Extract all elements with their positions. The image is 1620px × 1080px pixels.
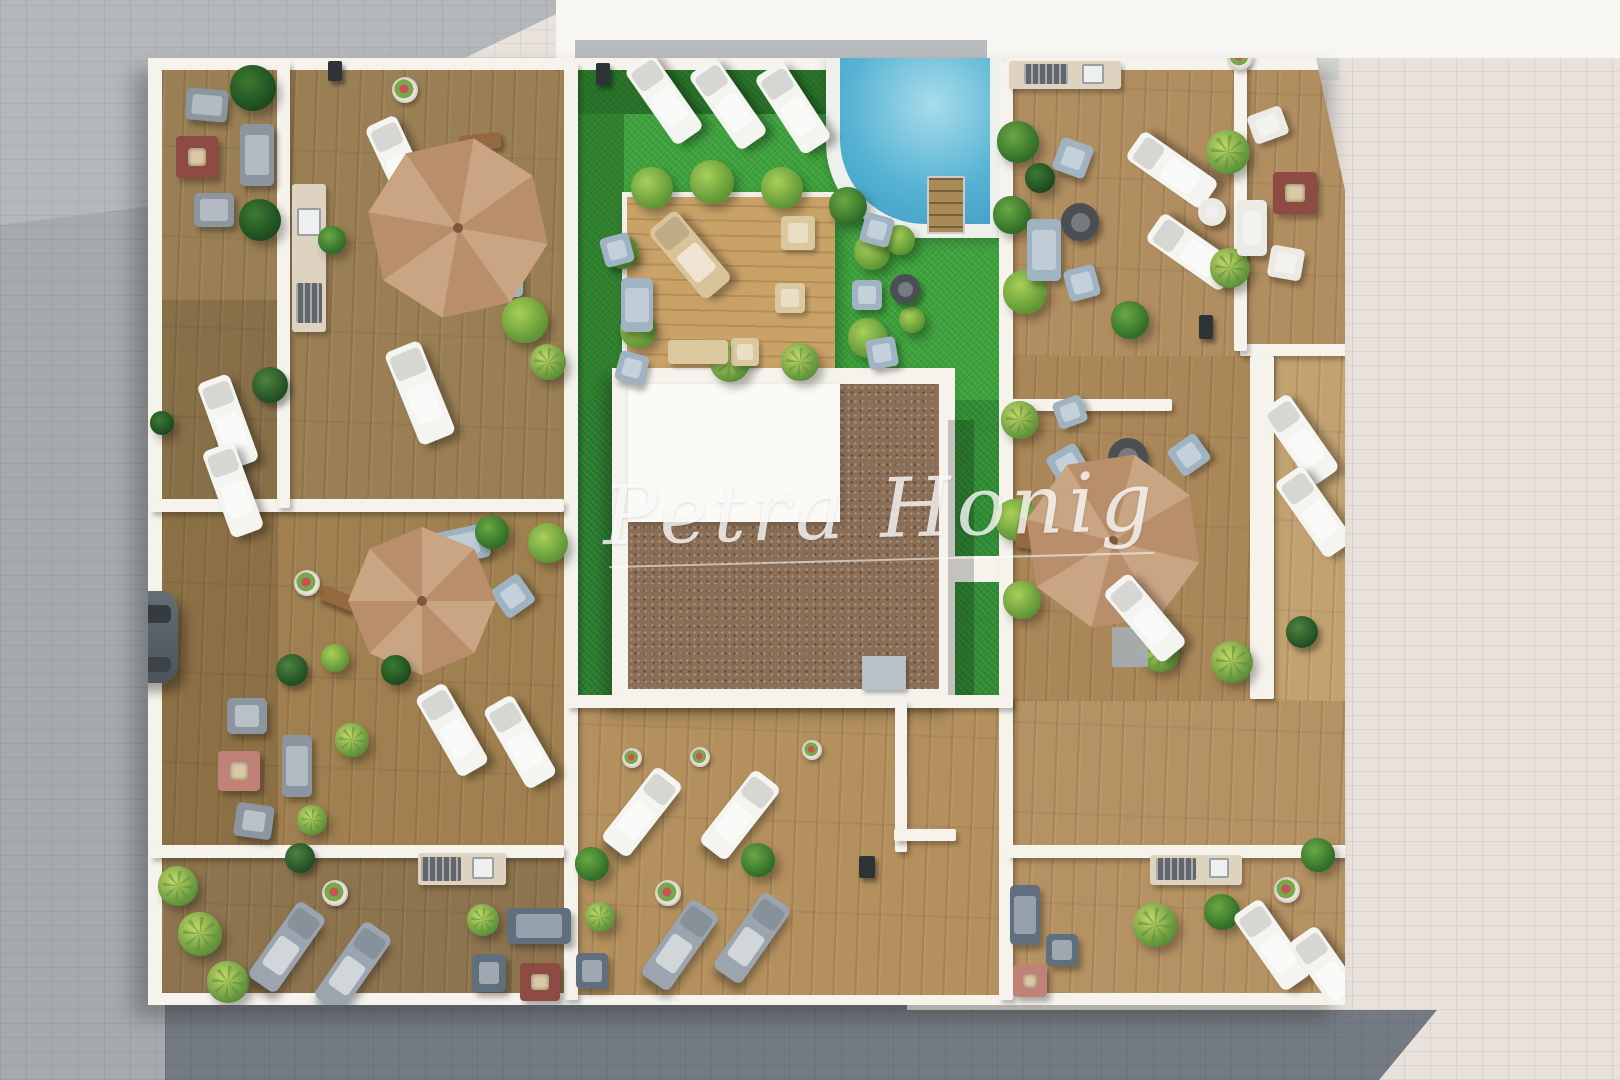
bbq-grill bbox=[1156, 858, 1196, 880]
outdoor-sink bbox=[1082, 64, 1104, 84]
palm-plant bbox=[1211, 641, 1253, 683]
flower-planter bbox=[622, 748, 642, 768]
side-table bbox=[890, 274, 920, 304]
bbq-grill bbox=[1024, 64, 1068, 84]
white-flat-roof bbox=[628, 384, 840, 522]
grass-strip-left bbox=[578, 400, 614, 700]
armchair bbox=[233, 802, 275, 841]
armchair bbox=[1237, 200, 1267, 256]
fire-pit-table bbox=[176, 136, 218, 178]
plant bbox=[631, 167, 673, 209]
fire-pit-table bbox=[1273, 172, 1317, 214]
roof-shadow-right bbox=[948, 420, 974, 702]
armchair bbox=[576, 953, 608, 989]
light-bollard bbox=[859, 856, 875, 878]
terrace-wall bbox=[567, 695, 1013, 708]
palm-plant bbox=[1001, 401, 1039, 439]
plant bbox=[150, 411, 174, 435]
platform-bench bbox=[668, 340, 728, 364]
plant bbox=[899, 307, 925, 333]
palm-plant bbox=[585, 902, 615, 932]
palm-plant bbox=[178, 912, 222, 956]
road-curb-strip bbox=[575, 40, 987, 58]
plant bbox=[829, 187, 867, 225]
plant bbox=[997, 121, 1039, 163]
terrace-wall bbox=[894, 829, 956, 841]
flower-planter bbox=[294, 570, 320, 596]
flower-planter bbox=[322, 880, 348, 906]
plant bbox=[475, 515, 509, 549]
plant bbox=[1301, 838, 1335, 872]
sofa bbox=[282, 735, 312, 797]
plant bbox=[1025, 163, 1055, 193]
plant bbox=[239, 199, 281, 241]
plant bbox=[502, 297, 548, 343]
plant bbox=[690, 160, 734, 204]
outdoor-sink bbox=[297, 208, 321, 236]
bbq-grill bbox=[296, 283, 322, 323]
plant bbox=[528, 523, 568, 563]
plant bbox=[381, 655, 411, 685]
sofa bbox=[507, 908, 571, 944]
palm-plant bbox=[530, 344, 566, 380]
plant bbox=[230, 65, 276, 111]
sofa bbox=[240, 124, 274, 186]
bbq-grill bbox=[421, 857, 461, 881]
palm-plant bbox=[297, 805, 327, 835]
fire-pit-table bbox=[520, 963, 560, 1001]
lounge-cushion bbox=[731, 338, 759, 366]
sofa bbox=[1027, 219, 1061, 281]
armchair bbox=[865, 336, 900, 371]
side-table bbox=[1198, 198, 1226, 226]
flower-planter bbox=[690, 747, 710, 767]
plant bbox=[575, 847, 609, 881]
flower-planter bbox=[392, 77, 418, 103]
terrace-wall bbox=[277, 61, 290, 508]
pool-steps bbox=[927, 176, 965, 234]
parasol-umbrella bbox=[348, 527, 496, 675]
palm-plant bbox=[781, 343, 819, 381]
light-bollard bbox=[596, 63, 610, 85]
sofa bbox=[185, 87, 230, 123]
step-stone bbox=[862, 656, 906, 690]
side-table bbox=[1061, 203, 1099, 241]
palm-plant bbox=[335, 723, 369, 757]
light-bollard bbox=[1199, 315, 1213, 339]
fire-pit-table bbox=[1013, 965, 1047, 997]
sofa bbox=[194, 193, 234, 227]
outdoor-sink bbox=[1209, 858, 1229, 878]
plant bbox=[321, 644, 349, 672]
palm-plant bbox=[467, 904, 499, 936]
armchair bbox=[1266, 244, 1305, 281]
plant bbox=[318, 226, 346, 254]
topiary-bush bbox=[285, 843, 315, 873]
palm-plant bbox=[207, 961, 249, 1003]
terrace-deck-bottom-center bbox=[578, 708, 1006, 995]
armchair bbox=[1046, 934, 1078, 966]
plant bbox=[761, 167, 803, 209]
topiary-bush bbox=[1286, 616, 1318, 648]
flower-planter bbox=[655, 880, 681, 906]
topiary-bush bbox=[276, 654, 308, 686]
light-bollard bbox=[328, 61, 342, 81]
palm-plant bbox=[1133, 903, 1177, 947]
plant bbox=[1204, 894, 1240, 930]
plant bbox=[993, 196, 1031, 234]
armchair bbox=[472, 954, 506, 992]
topiary-bush bbox=[252, 367, 288, 403]
flower-planter bbox=[802, 740, 822, 760]
sofa bbox=[1010, 885, 1040, 945]
fire-pit-table bbox=[218, 751, 260, 791]
terrace-wall bbox=[150, 499, 564, 512]
armchair bbox=[852, 280, 882, 310]
sofa bbox=[621, 278, 653, 332]
plant bbox=[741, 843, 775, 877]
apartment-building-roof-terraces bbox=[148, 58, 1345, 1005]
terrace-wall bbox=[1240, 344, 1347, 356]
plant bbox=[1111, 301, 1149, 339]
plant bbox=[1003, 581, 1041, 619]
lounge-cushion bbox=[781, 216, 815, 250]
lounge-cushion bbox=[775, 283, 805, 313]
flower-planter bbox=[1274, 877, 1300, 903]
aerial-render: Petra Honig bbox=[0, 0, 1620, 1080]
palm-plant bbox=[158, 866, 198, 906]
outdoor-sink bbox=[472, 857, 494, 879]
palm-plant bbox=[1206, 130, 1250, 174]
armchair bbox=[227, 698, 267, 734]
